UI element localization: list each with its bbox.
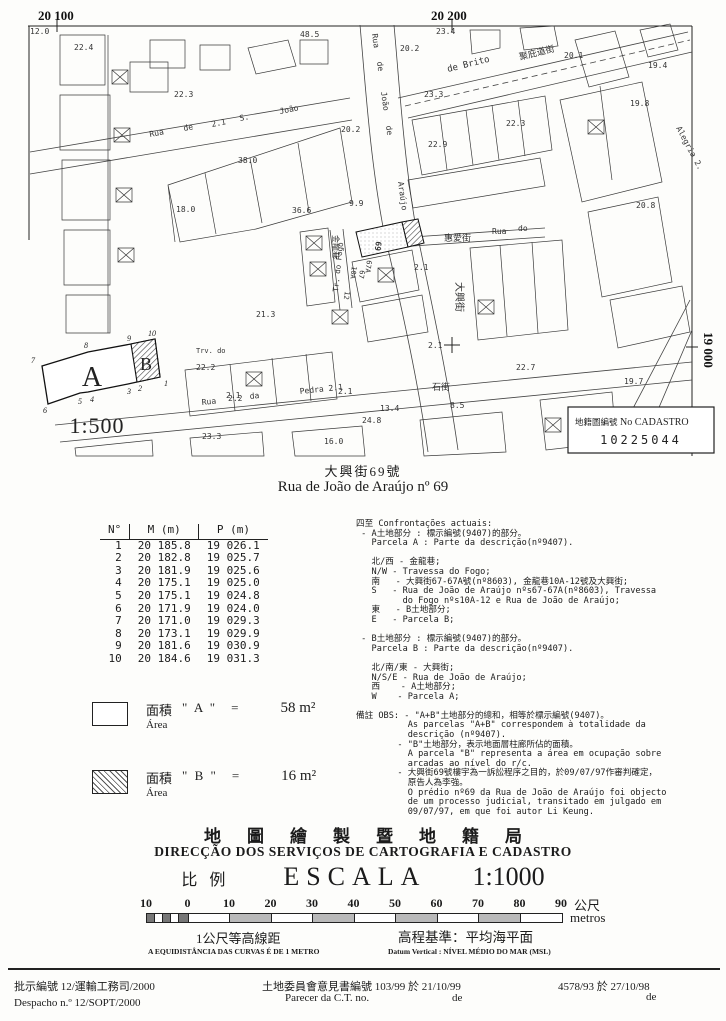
spot-height: 22.4: [74, 43, 93, 52]
table-row: 520 175.119 024.8: [100, 590, 268, 603]
scale-label-zh: 比例: [181, 866, 237, 890]
area-label-zh: 面積: [146, 768, 172, 787]
datum-note-zh: 高程基準：平均海平面: [398, 926, 533, 946]
spot-height: 9.9: [349, 199, 364, 208]
svg-text:1: 1: [164, 379, 168, 388]
street-label: de: [384, 125, 394, 136]
map-annotation: 2.1: [338, 387, 353, 396]
svg-text:4: 4: [90, 395, 94, 404]
area-a-value: 58 m²: [280, 700, 315, 717]
table-row: 720 171.019 029.3: [100, 615, 268, 628]
spot-height: 20.2: [400, 44, 419, 53]
table-row: 220 182.819 025.7: [100, 552, 268, 565]
cadastro-label-pt: No CADASTRO: [620, 417, 689, 428]
despacho-number-pt: Despacho n.º 12/SOPT/2000: [14, 997, 141, 1009]
footer-divider: [8, 968, 720, 970]
svg-text:7: 7: [31, 356, 36, 365]
street-label: de: [375, 61, 385, 72]
equals-sign: =: [231, 700, 240, 716]
scale-bar: [146, 913, 563, 923]
scale-value: 1:1000: [472, 862, 544, 892]
grid-label-20100: 20 100: [38, 8, 74, 23]
legend-area-a: 面積 Área " A " = 58 m²: [92, 700, 315, 731]
area-b-name: " B ": [182, 768, 218, 784]
spot-height: 23.4: [436, 27, 455, 36]
spot-height: 19.7: [624, 377, 643, 386]
area-a-swatch: [92, 702, 128, 726]
spot-height: 12.0: [30, 27, 49, 36]
scalebar-unit-pt: metros: [570, 910, 605, 926]
street-label: de: [183, 122, 194, 133]
table-row: 1020 184.619 031.3: [100, 653, 268, 666]
cadastro-label-zh: 地籍圖編號: [575, 417, 618, 427]
process-de: de: [646, 991, 656, 1003]
parecer-de: de: [452, 992, 462, 1004]
street-label: 金龍巷: [331, 235, 341, 259]
street-label: 石街: [432, 381, 450, 393]
agency-name-pt: DIRECÇÃO DOS SERVIÇOS DE CARTOGRAFIA E C…: [0, 844, 726, 860]
col-header-n: N°: [100, 524, 130, 539]
street-label: S.: [239, 112, 250, 123]
col-header-p: P (m): [199, 524, 268, 539]
spot-height: 38.0: [238, 156, 257, 165]
coordinate-table: N° M (m) P (m) 120 185.819 026.1 220 182…: [100, 524, 268, 666]
street-label: Pedra 2.1: [299, 382, 343, 396]
street-label: Rua: [492, 227, 507, 236]
spot-height: 20.8: [636, 201, 655, 210]
area-label-pt: Área: [146, 719, 172, 731]
svg-text:2: 2: [138, 384, 142, 393]
contour-note-pt: A EQUIDISTÂNCIA DAS CURVAS É DE 1 METRO: [148, 947, 320, 956]
spot-height: 2.2: [228, 394, 243, 403]
street-label: da: [249, 391, 260, 401]
grid-label-20200: 20 200: [431, 8, 467, 23]
map-annotation: 2.1: [428, 341, 443, 350]
spot-height: 23.3: [424, 90, 443, 99]
spot-height: 16.0: [324, 437, 343, 446]
equals-sign: =: [232, 768, 241, 784]
spot-height: 36.6: [292, 206, 311, 215]
spot-height: 22.2: [196, 363, 215, 372]
scale-label-pt: ESCALA: [283, 862, 426, 892]
street-label: Alegria 2.: [674, 125, 705, 172]
grid-label-19000: 19 000: [701, 332, 716, 368]
despacho-number-zh: 批示編號 12/運輸工務司/2000: [14, 978, 155, 994]
inset-scale-label: 1:500: [69, 413, 124, 438]
spot-height: 19.4: [648, 61, 667, 70]
contour-note-zh: 1公尺等高線距: [196, 928, 281, 947]
parcel-a-shape: [356, 222, 408, 257]
col-header-m: M (m): [130, 524, 199, 539]
svg-text:3: 3: [126, 387, 131, 396]
street-label: de Brito: [446, 55, 490, 75]
street-label: Rua: [149, 127, 165, 139]
scalebar-tick-labels: 10 0 10 20 30 40 50 60 70 80 90: [146, 896, 566, 910]
svg-text:8: 8: [84, 341, 88, 350]
spot-height: 20.1: [564, 51, 583, 60]
street-label: 惠愛街: [444, 232, 471, 244]
spot-height: 48.5: [300, 30, 319, 39]
street-label: João: [379, 91, 391, 112]
confrontations-block: 四至 Confrontações actuais: - A土地部分 : 標示編號…: [356, 520, 666, 817]
spot-height: 8.5: [450, 401, 465, 410]
street-label: Rua: [201, 397, 216, 407]
inset-label-a: A: [82, 362, 103, 393]
cadastro-number: 10225044: [600, 433, 682, 447]
svg-text:6: 6: [43, 406, 47, 415]
spot-height: 19.8: [630, 99, 649, 108]
area-b-value: 16 m²: [281, 768, 316, 785]
cadastral-map: 20 100 20 200 19 000: [0, 0, 726, 458]
sheet-title-zh: 大興街69號: [0, 461, 726, 480]
spot-height: 18.0: [176, 205, 195, 214]
cadastral-plan-sheet: 20 100 20 200 19 000: [0, 0, 726, 1021]
street-label: Araújo: [396, 181, 409, 211]
svg-text:10: 10: [148, 329, 156, 338]
area-b-swatch: [92, 770, 128, 794]
svg-text:5: 5: [78, 397, 82, 406]
process-number: 4578/93 於 27/10/98: [558, 978, 650, 994]
parecer-number-pt: Parecer da C.T. no.: [285, 992, 369, 1004]
legend-area-b: 面積 Área " B " = 16 m²: [92, 768, 316, 799]
datum-note-pt: Datum Vertical : NÍVEL MÉDIO DO MAR (MSL…: [388, 947, 551, 956]
spot-height: 22.3: [506, 119, 525, 128]
spot-height: 23.3: [202, 432, 221, 441]
street-label: Trv. do: [196, 347, 226, 355]
street-label: Rua: [370, 33, 381, 49]
svg-text:9: 9: [127, 334, 131, 343]
cadastro-number-box: 地籍圖編號 No CADASTRO 10225044: [568, 407, 714, 453]
house-number-label: 69: [373, 241, 383, 252]
grid-cross-icon: [444, 337, 460, 353]
street-label: 2.1: [211, 117, 227, 129]
subject-parcel: [356, 219, 424, 257]
inset-label-b: B: [140, 354, 152, 374]
spot-height: 20.2: [341, 125, 360, 134]
street-label: João: [279, 103, 300, 116]
map-annotation: 2.1: [414, 263, 429, 272]
sheet-title-pt: Rua de João de Araújo nº 69: [0, 479, 726, 496]
spot-height: 22.9: [428, 140, 447, 149]
spot-height: 24.8: [362, 416, 381, 425]
spot-height: 22.7: [516, 363, 535, 372]
house-number-label: 12: [342, 291, 351, 300]
house-number-label: 10A: [348, 266, 358, 280]
scale-statement: 比例 ESCALA 1:1000: [0, 862, 726, 892]
parcel-inset: A B 1 2 3 4 5 6 7 8 9 10 1:500: [31, 329, 168, 438]
spot-height: 22.3: [174, 90, 193, 99]
area-label-zh: 面積: [146, 700, 172, 719]
area-a-name: " A ": [182, 700, 217, 716]
spot-height: 21.3: [256, 310, 275, 319]
street-label: do: [518, 224, 528, 233]
area-label-pt: Área: [146, 787, 172, 799]
street-label: 大興街: [453, 282, 466, 312]
spot-height: 13.4: [380, 404, 399, 413]
